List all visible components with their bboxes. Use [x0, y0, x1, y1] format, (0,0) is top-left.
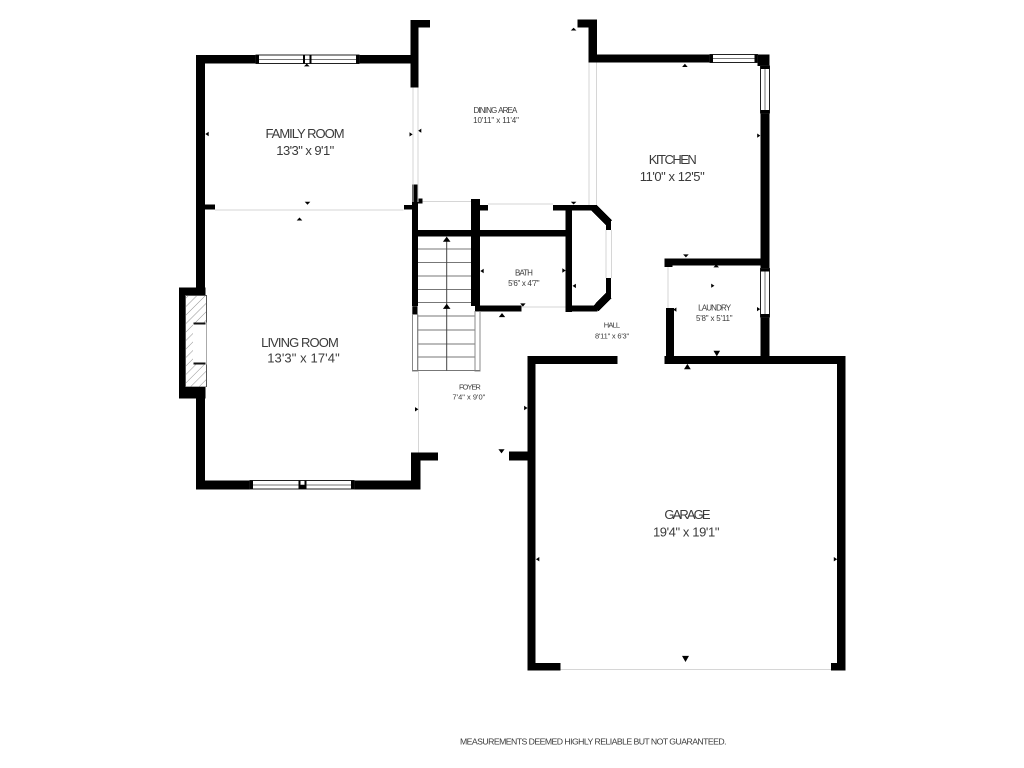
- svg-text:MEASUREMENTS DEEMED HIGHLY REL: MEASUREMENTS DEEMED HIGHLY RELIABLE BUT …: [460, 737, 726, 747]
- svg-text:DINING AREA: DINING AREA: [473, 106, 518, 115]
- svg-text:10'11" x 11'4": 10'11" x 11'4": [473, 116, 519, 125]
- svg-text:HALL: HALL: [604, 321, 620, 330]
- svg-text:GARAGE: GARAGE: [664, 507, 710, 522]
- svg-text:BATH: BATH: [515, 268, 533, 277]
- svg-text:5'6" x 4'7": 5'6" x 4'7": [508, 279, 540, 288]
- svg-text:13'3" x 9'1": 13'3" x 9'1": [276, 143, 334, 158]
- svg-text:8'11" x 6'3": 8'11" x 6'3": [595, 331, 630, 340]
- svg-text:5'8" x 5'11": 5'8" x 5'11": [696, 314, 733, 323]
- svg-text:13'3" x 17'4": 13'3" x 17'4": [267, 351, 340, 366]
- svg-text:19'4" x 19'1": 19'4" x 19'1": [653, 525, 720, 540]
- svg-text:FOYER: FOYER: [459, 383, 481, 392]
- svg-text:FAMILY ROOM: FAMILY ROOM: [265, 126, 343, 141]
- svg-text:LAUNDRY: LAUNDRY: [698, 303, 732, 312]
- svg-text:LIVING ROOM: LIVING ROOM: [261, 335, 338, 350]
- svg-text:11'0" x 12'5": 11'0" x 12'5": [640, 169, 705, 184]
- svg-text:7'4" x 9'0": 7'4" x 9'0": [453, 392, 486, 401]
- svg-text:KITCHEN: KITCHEN: [649, 152, 697, 167]
